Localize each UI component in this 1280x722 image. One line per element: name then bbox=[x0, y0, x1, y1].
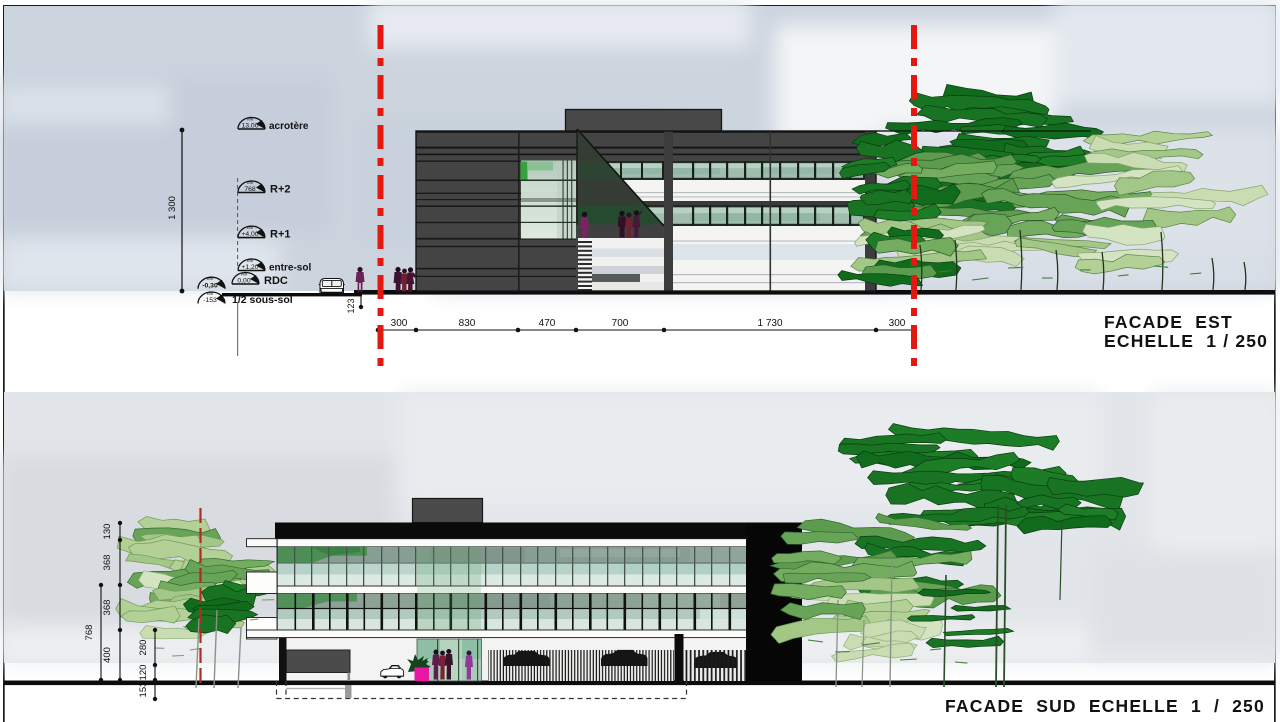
svg-text:768: 768 bbox=[84, 625, 95, 641]
svg-text:+1,20: +1,20 bbox=[241, 264, 258, 271]
svg-text:niv: niv bbox=[241, 272, 248, 278]
svg-text:470: 470 bbox=[539, 318, 556, 329]
svg-text:niv: niv bbox=[207, 276, 214, 282]
svg-text:acrotère: acrotère bbox=[269, 121, 309, 132]
svg-text:RDC: RDC bbox=[264, 275, 288, 287]
svg-text:400: 400 bbox=[102, 647, 113, 663]
svg-text:153: 153 bbox=[138, 682, 149, 698]
svg-text:120: 120 bbox=[138, 665, 149, 681]
svg-text:130: 130 bbox=[102, 524, 113, 540]
svg-text:FACADE SUD ECHELLE 1 / 250: FACADE SUD ECHELLE 1 / 250 bbox=[945, 696, 1265, 716]
svg-text:niv: niv bbox=[247, 225, 254, 231]
svg-text:300: 300 bbox=[391, 318, 408, 329]
svg-text:niv: niv bbox=[207, 291, 214, 297]
svg-text:niv: niv bbox=[247, 117, 254, 123]
svg-text:R+1: R+1 bbox=[270, 229, 291, 241]
svg-text:+4,00: +4,00 bbox=[241, 231, 258, 238]
svg-text:1/2 sous-sol: 1/2 sous-sol bbox=[232, 294, 293, 306]
svg-text:368: 368 bbox=[102, 555, 113, 571]
svg-text:niv: niv bbox=[247, 258, 254, 264]
svg-text:niv: niv bbox=[247, 180, 254, 186]
svg-text:FACADE EST: FACADE EST bbox=[1104, 312, 1233, 332]
svg-text:1 730: 1 730 bbox=[757, 318, 782, 329]
svg-text:ECHELLE 1 / 250: ECHELLE 1 / 250 bbox=[1104, 331, 1268, 351]
svg-text:R+2: R+2 bbox=[270, 184, 291, 196]
svg-text:368: 368 bbox=[102, 600, 113, 616]
svg-text:280: 280 bbox=[138, 640, 149, 656]
svg-text:13,00: 13,00 bbox=[241, 123, 258, 130]
svg-text:0,00: 0,00 bbox=[237, 278, 250, 285]
svg-text:768: 768 bbox=[244, 186, 256, 193]
svg-text:-153: -153 bbox=[203, 297, 217, 304]
svg-text:700: 700 bbox=[612, 318, 629, 329]
svg-text:entre-sol: entre-sol bbox=[269, 263, 311, 274]
svg-text:-0,30: -0,30 bbox=[202, 282, 218, 289]
svg-text:1 300: 1 300 bbox=[167, 196, 178, 220]
svg-text:300: 300 bbox=[889, 318, 906, 329]
svg-text:123: 123 bbox=[346, 298, 356, 313]
svg-text:830: 830 bbox=[459, 318, 476, 329]
